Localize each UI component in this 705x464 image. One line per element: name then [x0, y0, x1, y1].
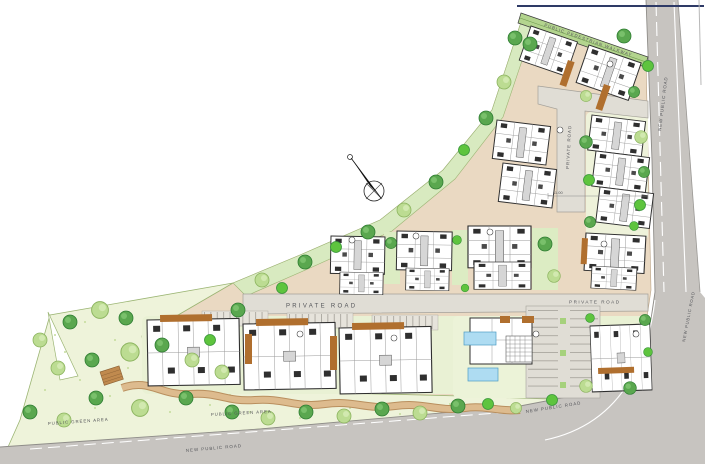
tree-icon — [361, 225, 375, 239]
building-block — [468, 226, 531, 268]
tree-icon — [89, 391, 103, 405]
tree-icon — [635, 200, 646, 211]
tree-icon — [461, 284, 469, 292]
tree-icon — [385, 237, 396, 248]
unit-marker — [413, 233, 419, 239]
pergola — [256, 318, 308, 326]
tree-icon — [255, 273, 269, 287]
tree-icon — [479, 111, 493, 125]
building-block — [591, 266, 637, 290]
pool — [468, 368, 498, 381]
building-block — [474, 262, 531, 289]
building-block — [406, 268, 450, 291]
tree-icon — [33, 333, 47, 347]
tree-icon — [337, 409, 351, 423]
unit-marker — [349, 237, 355, 243]
tree-icon — [205, 335, 216, 346]
tree-icon — [643, 61, 654, 72]
tree-icon — [624, 382, 637, 395]
tree-icon — [132, 400, 149, 417]
tree-icon — [51, 361, 65, 375]
label-private-road-horizontal: PRIVATE ROAD — [286, 304, 357, 310]
tree-icon — [85, 353, 99, 367]
tree-icon — [179, 391, 193, 405]
tree-icon — [523, 37, 537, 51]
unit-marker — [533, 331, 539, 337]
pergola — [598, 367, 634, 374]
tree-icon — [508, 31, 522, 45]
tree-icon — [538, 237, 552, 251]
tree-icon — [413, 406, 427, 420]
tree-icon — [121, 343, 139, 361]
label-private-road-east: PRIVATE ROAD — [569, 300, 621, 305]
pergola — [160, 314, 212, 322]
tree-icon — [397, 203, 411, 217]
tree-icon — [635, 131, 648, 144]
tree-icon — [185, 353, 199, 367]
pergola — [500, 316, 510, 323]
unit-marker — [487, 229, 493, 235]
tree-icon — [277, 283, 288, 294]
tree-icon — [451, 399, 465, 413]
tree-icon — [483, 399, 494, 410]
pergola — [330, 336, 337, 370]
unit-marker — [607, 61, 613, 67]
tree-icon — [63, 315, 77, 329]
tree-icon — [639, 314, 650, 325]
building-block — [492, 120, 550, 165]
tree-icon — [23, 405, 37, 419]
unit-marker — [557, 127, 563, 133]
unit-marker — [633, 331, 639, 337]
tree-icon — [638, 166, 649, 177]
building-row — [339, 326, 432, 394]
tree-icon — [215, 365, 229, 379]
tree-icon — [584, 216, 595, 227]
tree-icon — [580, 136, 593, 149]
tree-icon — [299, 405, 313, 419]
building-row — [590, 324, 652, 392]
unit-marker — [391, 335, 397, 341]
tree-icon — [331, 242, 342, 253]
pool — [464, 332, 496, 345]
tree-icon — [119, 311, 133, 325]
unit-marker — [601, 241, 607, 247]
tree-icon — [497, 75, 511, 89]
pergola — [352, 322, 404, 330]
site-plan-drawing: 11.00 PUBLIC PEDESTRIAN WALKWAY NEW PUBL… — [0, 0, 705, 464]
tree-icon — [628, 86, 639, 97]
tree-icon — [298, 255, 312, 269]
site-plan-page: 11.00 PUBLIC PEDESTRIAN WALKWAY NEW PUBL… — [0, 0, 705, 464]
tree-icon — [92, 302, 109, 319]
tree-icon — [580, 90, 591, 101]
tree-icon — [617, 29, 631, 43]
tree-icon — [644, 348, 653, 357]
pergola — [522, 316, 534, 323]
tree-icon — [548, 270, 561, 283]
tree-icon — [580, 380, 593, 393]
tree-icon — [459, 145, 470, 156]
building-block — [340, 272, 384, 295]
building-block — [498, 163, 556, 208]
tree-icon — [510, 402, 521, 413]
tree-icon — [586, 314, 595, 323]
tree-icon — [630, 222, 639, 231]
tree-icon — [375, 402, 389, 416]
tree-icon — [453, 236, 462, 245]
building-block — [396, 231, 452, 271]
tree-icon — [429, 175, 443, 189]
dimension-text: 11.00 — [553, 190, 563, 195]
tree-icon — [231, 303, 245, 317]
building-row — [243, 322, 336, 390]
tree-icon — [155, 338, 169, 352]
pergola — [245, 334, 252, 364]
tree-icon — [584, 175, 595, 186]
unit-marker — [297, 331, 303, 337]
